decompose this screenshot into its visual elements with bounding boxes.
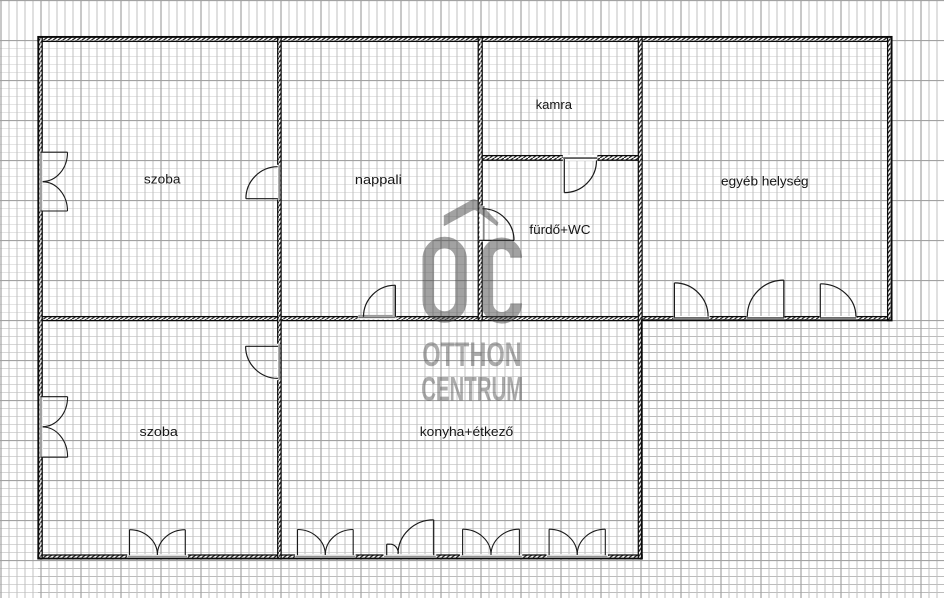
svg-text:konyha+étkező: konyha+étkező: [420, 424, 514, 439]
svg-text:OTTHON: OTTHON: [422, 336, 522, 374]
svg-text:fürdő+WC: fürdő+WC: [529, 222, 591, 237]
svg-text:kamra: kamra: [536, 97, 573, 112]
svg-text:CENTRUM: CENTRUM: [421, 371, 523, 409]
svg-text:szoba: szoba: [144, 172, 181, 187]
svg-text:egyéb helység: egyéb helység: [721, 173, 809, 188]
svg-text:szoba: szoba: [140, 424, 179, 439]
svg-text:nappali: nappali: [355, 172, 402, 187]
